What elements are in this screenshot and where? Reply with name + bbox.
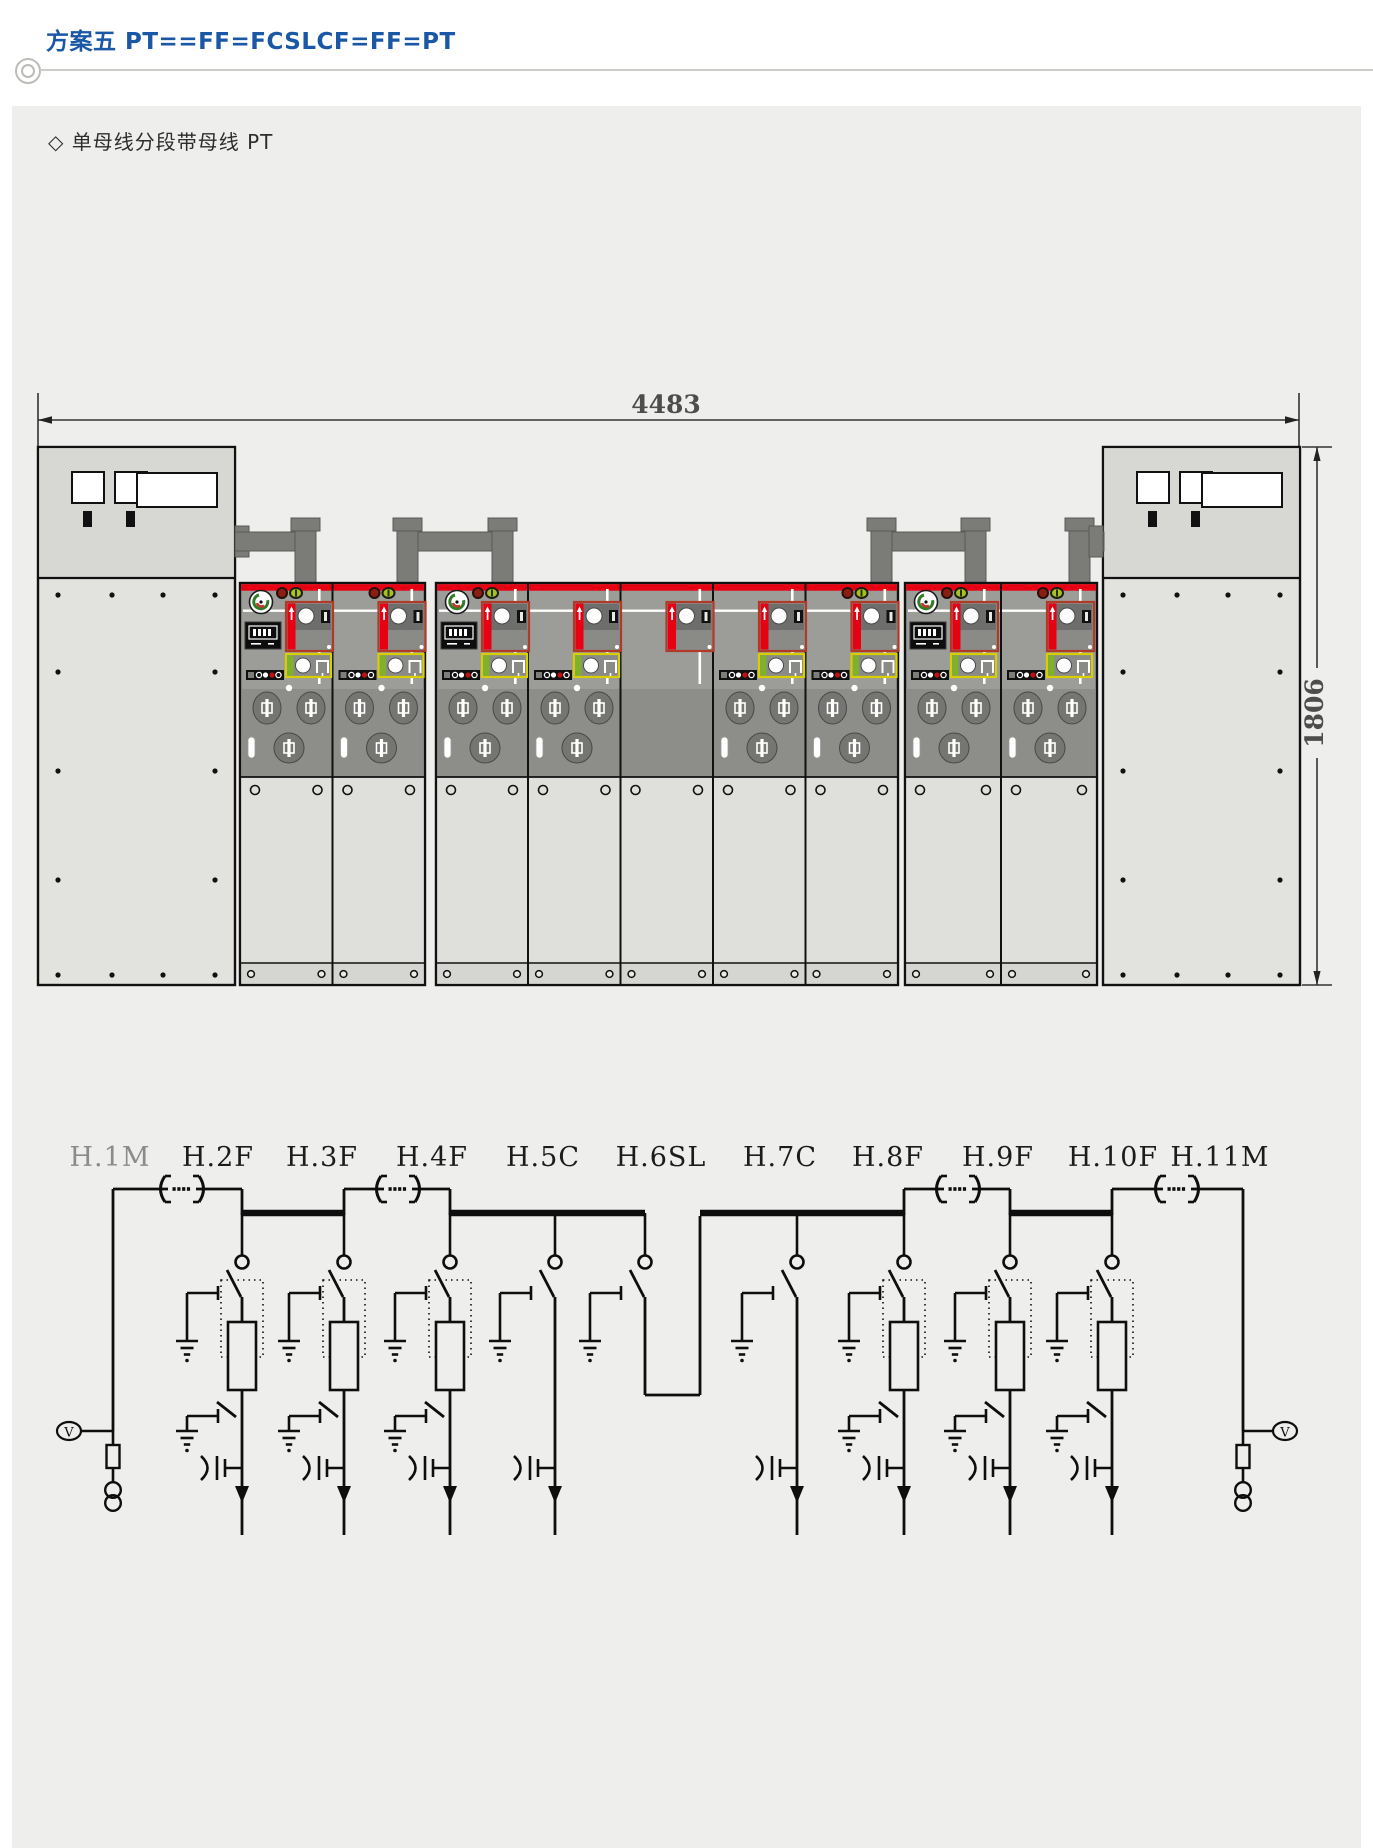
switchgear-diagram: 44831806H.1MH.2FH.3FH.4FH.5CH.6SLH.7CH.8… <box>0 0 1373 1848</box>
load-break-switch-module <box>759 602 806 651</box>
unit-label-H.1M: H.1M <box>70 1142 151 1173</box>
display-unit <box>441 622 477 649</box>
earthing-switch-module <box>951 654 996 677</box>
load-break-switch-module <box>482 602 529 651</box>
mechanism-strip <box>339 670 377 680</box>
load-break-switch-module <box>286 602 333 651</box>
dimension-height: 1806 <box>1300 447 1332 985</box>
unit-label-H.11M: H.11M <box>1170 1142 1269 1173</box>
mechanism-strip <box>1007 670 1045 680</box>
unit-label-H.6SL: H.6SL <box>616 1142 707 1173</box>
mechanism-strip <box>442 670 480 680</box>
dimension-width: 4483 <box>38 390 1299 446</box>
voltage-indicator-label: V <box>63 1426 74 1441</box>
earthing-switch-module <box>286 654 331 677</box>
unit-label-H.10F: H.10F <box>1068 1142 1158 1173</box>
earthing-switch-module <box>574 654 619 677</box>
earthing-switch-module <box>1047 654 1092 677</box>
mechanism-strip <box>812 670 850 680</box>
load-break-switch-module <box>379 602 426 651</box>
left-pt-cabinet <box>38 447 235 985</box>
feeder-unit-symbol <box>1046 1213 1133 1535</box>
unit-label-H.9F: H.9F <box>962 1142 1034 1173</box>
load-break-switch-module <box>574 602 621 651</box>
feeder-unit-symbol <box>384 1213 471 1535</box>
single-line-diagram: H.1MH.2FH.3FH.4FH.5CH.6SLH.7CH.8FH.9FH.1… <box>57 1142 1297 1535</box>
earthing-switch-module <box>852 654 897 677</box>
cable-unit-symbol <box>731 1213 804 1535</box>
unit-label-H.7C: H.7C <box>743 1142 817 1173</box>
earthing-switch-module <box>482 654 527 677</box>
pt-unit-symbol-H.11M: V <box>1235 1189 1297 1511</box>
right-pt-cabinet <box>1103 447 1300 985</box>
load-break-switch-module <box>951 602 998 651</box>
brand-logo-icon <box>915 591 938 614</box>
sectionalizer-unit-symbol <box>579 1213 700 1395</box>
mechanism-strip <box>911 670 949 680</box>
feeder-unit-symbol <box>944 1213 1031 1535</box>
pt-unit-symbol-H.1M: V <box>57 1189 121 1511</box>
load-break-switch-module <box>667 602 714 651</box>
load-break-switch-module <box>1047 602 1094 651</box>
unit-label-H.5C: H.5C <box>506 1142 580 1173</box>
unit-label-H.4F: H.4F <box>396 1142 468 1173</box>
earthing-switch-module <box>379 654 424 677</box>
load-break-switch-module <box>852 602 899 651</box>
brand-logo-icon <box>446 591 469 614</box>
earthing-switch-module <box>759 654 804 677</box>
feeder-unit-symbol <box>176 1213 263 1535</box>
busbar-bridges <box>235 518 1104 584</box>
document-page: 方案五 PT==FF=FCSLCF=FF=PT ◇ 单母线分段带母线 PT 44… <box>0 0 1373 1848</box>
height-dimension-label: 1806 <box>1300 678 1329 748</box>
voltage-indicator-label: V <box>1279 1426 1290 1441</box>
cabinet-front-view: 44831806 <box>38 390 1332 985</box>
feeder-unit-symbol <box>838 1213 925 1535</box>
unit-label-H.8F: H.8F <box>852 1142 924 1173</box>
cable-unit-symbol <box>489 1213 562 1535</box>
display-unit <box>245 622 281 649</box>
brand-logo-icon <box>250 591 273 614</box>
feeder-unit-symbol <box>278 1213 365 1535</box>
mechanism-strip <box>719 670 757 680</box>
unit-label-H.3F: H.3F <box>286 1142 358 1173</box>
mechanism-strip <box>534 670 572 680</box>
display-unit <box>910 622 946 649</box>
width-dimension-label: 4483 <box>631 390 701 419</box>
mechanism-strip <box>246 670 284 680</box>
unit-label-H.2F: H.2F <box>182 1142 254 1173</box>
